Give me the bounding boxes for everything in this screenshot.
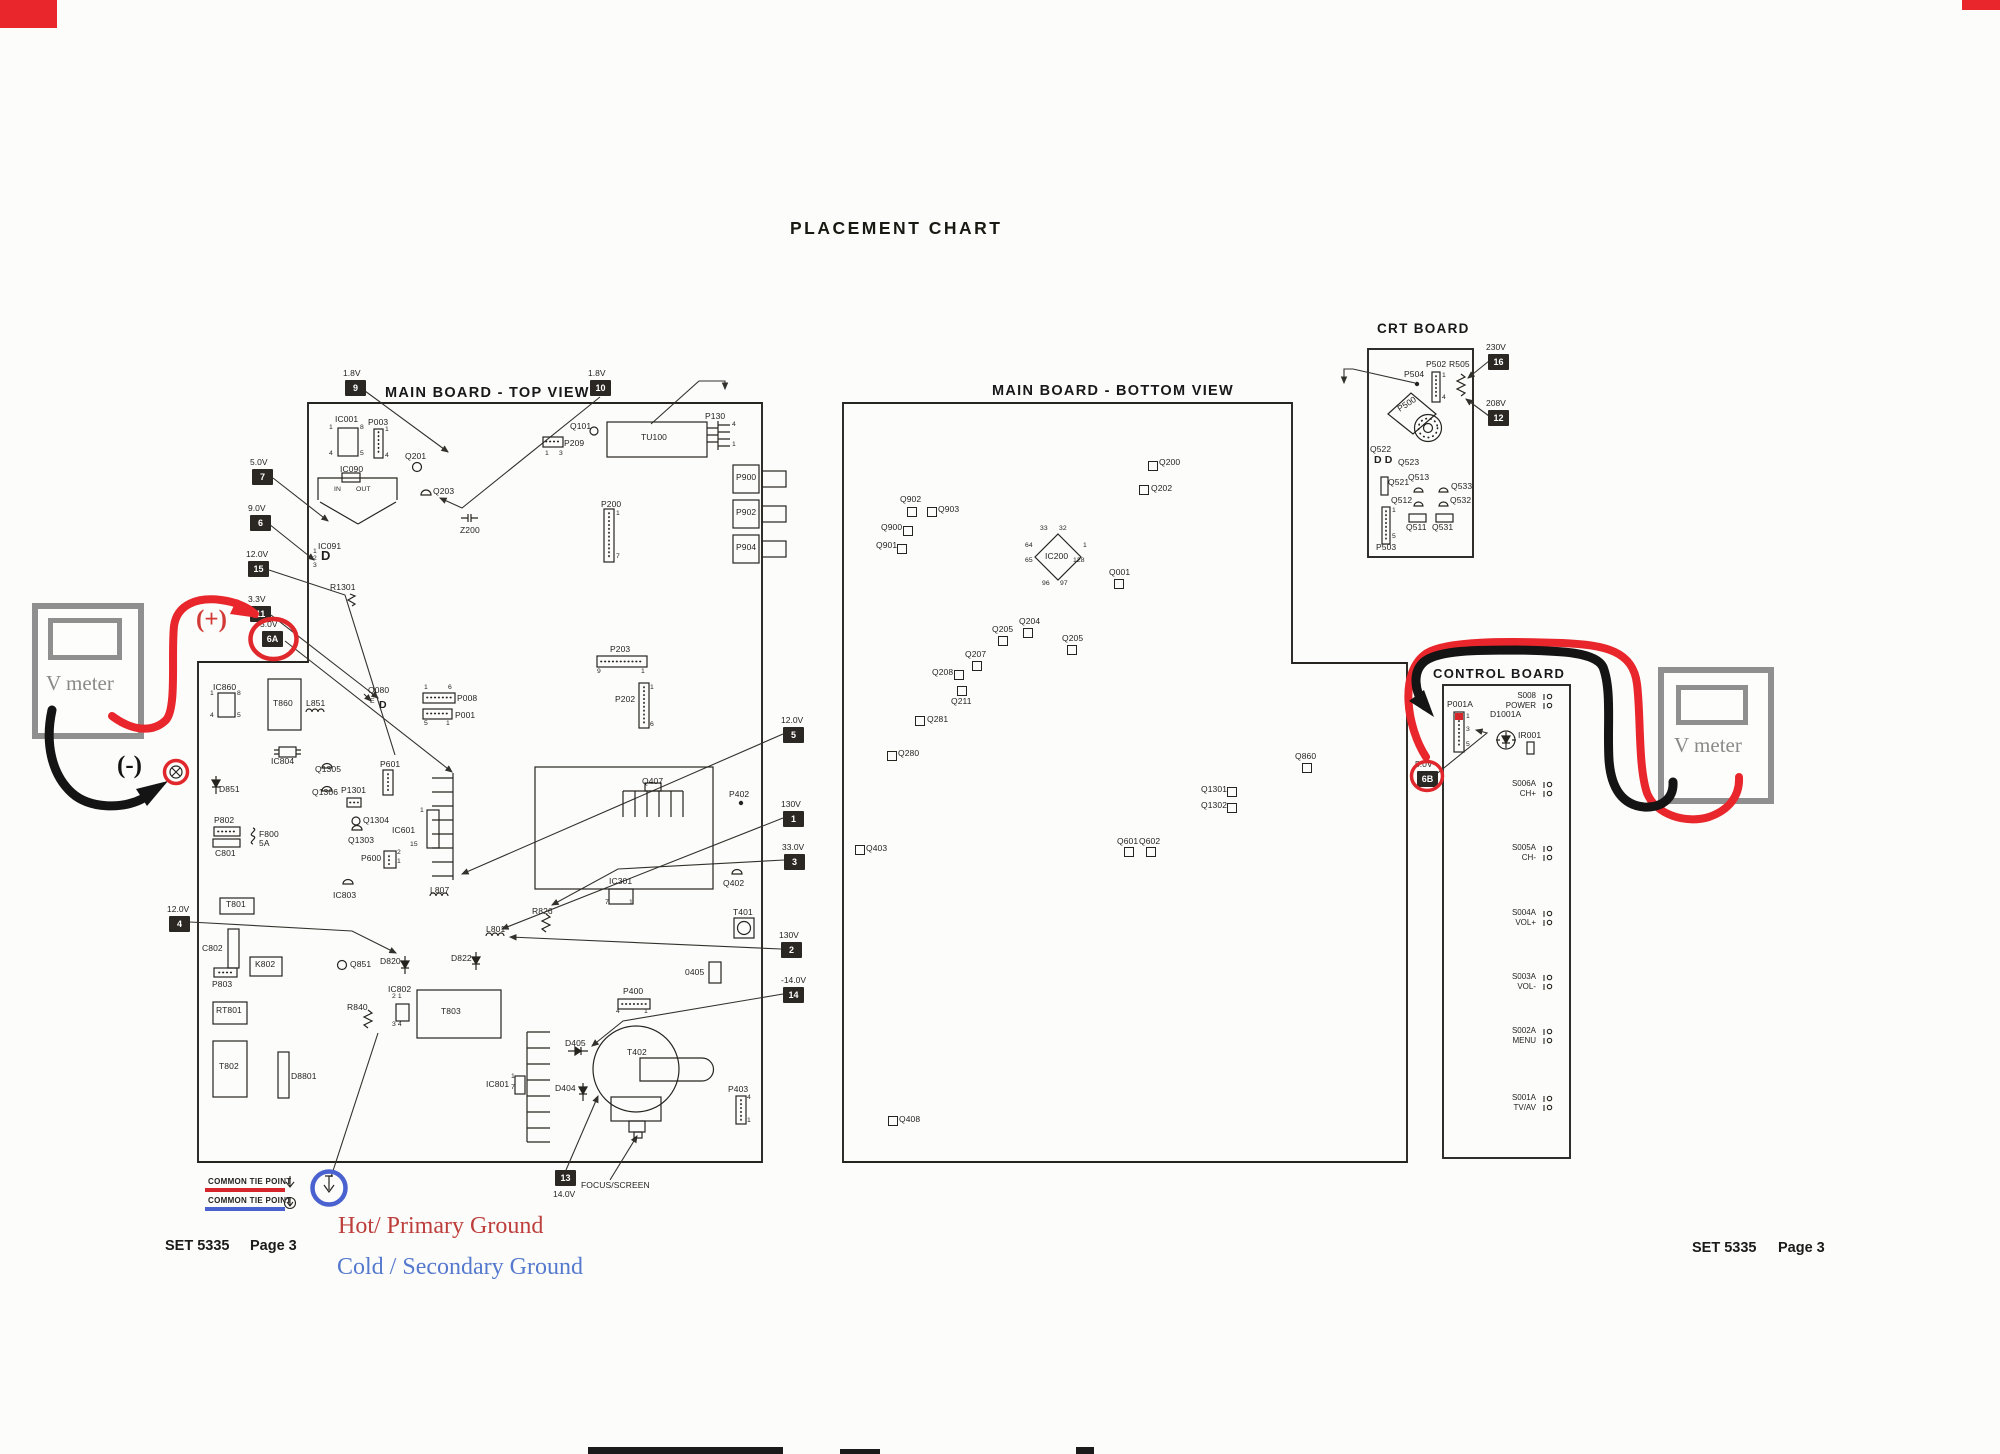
switch-label-ch-: S006ACH+	[1476, 779, 1536, 800]
legend-cold-ground: Cold / Secondary Ground	[337, 1254, 583, 1281]
component-label: D	[321, 549, 331, 563]
component-pad-q1302	[1227, 803, 1237, 813]
switch-icon-vol-	[1540, 909, 1556, 929]
pin-number: 32	[1059, 525, 1067, 532]
component-label: Q1301	[1201, 785, 1227, 794]
component-label: Q001	[1109, 568, 1130, 577]
pin-number: 5	[237, 712, 241, 719]
component-label: 5A	[259, 839, 270, 848]
component-label: FOCUS/SCREEN	[581, 1181, 650, 1190]
switch-icon-tv-av	[1540, 1094, 1556, 1114]
component-label: Q601	[1117, 837, 1138, 846]
component-label: Q281	[927, 715, 948, 724]
component-label: Q532	[1450, 496, 1471, 505]
test-point-voltage: 1.8V	[588, 368, 606, 378]
component-label: P904	[736, 543, 756, 552]
legend-hot-ground: Hot/ Primary Ground	[338, 1213, 543, 1240]
component-label: Q402	[723, 879, 744, 888]
component-label: P402	[729, 790, 749, 799]
test-point-voltage: 5.0V	[260, 619, 278, 629]
component-label: Q1306	[312, 788, 338, 797]
footer-right-set: SET 5335	[1692, 1240, 1757, 1256]
component-label: Q204	[1019, 617, 1040, 626]
test-point-6a: 6A	[262, 631, 283, 647]
test-point-voltage: 14.0V	[553, 1189, 575, 1199]
component-label: P008	[457, 694, 477, 703]
pin-number: 33	[1040, 525, 1048, 532]
component-label: R505	[1449, 360, 1470, 369]
component-label: RT801	[216, 1006, 242, 1015]
component-label: D851	[219, 785, 240, 794]
component-label: Q202	[1151, 484, 1172, 493]
component-pad-q403	[855, 845, 865, 855]
component-label: P209	[564, 439, 584, 448]
component-label: Q900	[881, 523, 902, 532]
component-label: Q080	[368, 686, 389, 695]
switch-icon-menu	[1540, 1027, 1556, 1047]
component-label: R1301	[330, 583, 356, 592]
pin-number: 3 4	[392, 1021, 402, 1028]
component-label: P1301	[341, 786, 366, 795]
component-label: P203	[610, 645, 630, 654]
v-meter-right-display	[1676, 685, 1748, 725]
component-label: D D	[1374, 455, 1392, 466]
pin-number: 3	[559, 450, 563, 457]
component-label: Q513	[1408, 473, 1429, 482]
component-label: Q201	[405, 452, 426, 461]
component-label: L801	[486, 925, 505, 934]
pin-number: 96	[1042, 580, 1050, 587]
v-meter-left: V meter	[32, 603, 144, 739]
component-label: Q903	[938, 505, 959, 514]
component-pad-q202	[1139, 485, 1149, 495]
component-label: P600	[361, 854, 381, 863]
test-point-6: 6	[250, 515, 271, 531]
test-point-voltage: 208V	[1486, 398, 1506, 408]
component-label: P803	[212, 980, 232, 989]
component-label: T401	[733, 908, 753, 917]
pin-number: 1	[629, 899, 633, 906]
test-point-6b: 6B	[1417, 771, 1438, 787]
component-label: Q511	[1406, 523, 1427, 532]
component-label: C801	[215, 849, 236, 858]
test-point-9: 9	[345, 380, 366, 396]
footer-left-set: SET 5335	[165, 1238, 230, 1254]
switch-label-menu: S002AMENU	[1476, 1026, 1536, 1047]
component-label: L807	[430, 886, 449, 895]
component-label: Q523	[1398, 458, 1419, 467]
pin-number: 97	[1060, 580, 1068, 587]
pin-number: 1	[446, 720, 450, 727]
component-label: IC200	[1045, 552, 1068, 561]
pin-number: 5	[1466, 741, 1470, 748]
component-label: P802	[214, 816, 234, 825]
component-label: IR001	[1518, 731, 1541, 740]
switch-label-power: S008POWER	[1476, 691, 1536, 712]
component-label: P001	[455, 711, 475, 720]
legend-common-tie-hot: COMMON TIE POINT	[208, 1177, 291, 1186]
component-pad-q204	[1023, 628, 1033, 638]
pin-number: 7	[605, 899, 609, 906]
crt-board-title: CRT BOARD	[1377, 321, 1470, 336]
component-label: IC301	[609, 877, 632, 886]
component-label: IN	[334, 486, 341, 493]
test-point-1: 1	[783, 811, 804, 827]
legend-common-tie-cold: COMMON TIE POINT	[208, 1196, 291, 1205]
pin-number: 1	[511, 1073, 515, 1080]
component-pad-q408	[888, 1116, 898, 1126]
component-pad-q903	[927, 507, 937, 517]
component-label: D822	[451, 954, 472, 963]
component-pad-q205	[1067, 645, 1077, 655]
component-label: P403	[728, 1085, 748, 1094]
component-label: P200	[601, 500, 621, 509]
pin-number: 1	[641, 668, 645, 675]
component-label: Q200	[1159, 458, 1180, 467]
component-label: Q512	[1391, 496, 1412, 505]
component-label: Q901	[876, 541, 897, 550]
switch-label-vol-: S004AVOL+	[1476, 908, 1536, 929]
test-point-voltage: 130V	[781, 799, 801, 809]
pin-number: 2 1	[392, 993, 402, 1000]
component-label: Q851	[350, 960, 371, 969]
pin-number: 9	[597, 668, 601, 675]
switch-icon-power	[1540, 692, 1556, 712]
component-pad-q602	[1146, 847, 1156, 857]
component-label: IC601	[392, 826, 415, 835]
component-label: Q522	[1370, 445, 1391, 454]
pin-number: 1	[424, 684, 428, 691]
component-label: Q211	[951, 697, 972, 706]
pin-number: 4	[385, 452, 389, 459]
pin-number: 4	[210, 712, 214, 719]
component-label: T801	[226, 900, 246, 909]
component-label: E	[370, 698, 375, 705]
footer-left-page: Page 3	[250, 1238, 297, 1254]
v-meter-left-label: V meter	[46, 671, 114, 696]
component-pad-q280	[887, 751, 897, 761]
pin-number: 2	[397, 849, 401, 856]
pin-number: 1	[616, 510, 620, 517]
component-label: Q860	[1295, 752, 1316, 761]
component-label: D	[379, 700, 387, 711]
v-meter-right-label: V meter	[1674, 733, 1742, 758]
component-label: P001A	[1447, 700, 1473, 709]
component-label: Q203	[433, 487, 454, 496]
component-pad-q200	[1148, 461, 1158, 471]
component-label: 0405	[685, 968, 704, 977]
component-pad-q001	[1114, 579, 1124, 589]
component-label: P502	[1426, 360, 1446, 369]
test-point-voltage: 33.0V	[782, 842, 804, 852]
component-label: Q205	[992, 625, 1013, 634]
component-label: IC801	[486, 1080, 509, 1089]
component-label: R826	[532, 907, 553, 916]
test-point-voltage: -14.0V	[781, 975, 806, 985]
test-point-voltage: 12.0V	[167, 904, 189, 914]
pin-number: 1	[210, 690, 214, 697]
pin-number: 5	[1392, 533, 1396, 540]
component-label: Q1302	[1201, 801, 1227, 810]
pin-number: 1	[644, 1008, 648, 1015]
pin-number: 64	[1025, 542, 1033, 549]
minus-annotation: (-)	[117, 752, 142, 780]
pin-number: 4	[747, 1094, 751, 1101]
component-pad-q902	[907, 507, 917, 517]
pin-number: 8	[237, 690, 241, 697]
component-label: Q205	[1062, 634, 1083, 643]
component-label: Q602	[1139, 837, 1160, 846]
component-label: P400	[623, 987, 643, 996]
component-label: L851	[306, 699, 325, 708]
test-point-voltage: 1.8V	[343, 368, 361, 378]
component-label: Q1303	[348, 836, 374, 845]
pin-number: 6	[650, 721, 654, 728]
v-meter-left-display	[48, 618, 122, 660]
test-point-12: 12	[1488, 410, 1509, 426]
test-point-3: 3	[784, 854, 805, 870]
component-label: TU100	[641, 433, 667, 442]
component-label: Q208	[932, 668, 953, 677]
test-point-voltage: 12.0V	[781, 715, 803, 725]
component-label: P504	[1404, 370, 1424, 379]
test-point-voltage: 5.0V	[250, 457, 268, 467]
component-pad-q1301	[1227, 787, 1237, 797]
component-label: P503	[1376, 543, 1396, 552]
component-pad-q601	[1124, 847, 1134, 857]
test-point-2: 2	[781, 942, 802, 958]
component-pad-q281	[915, 716, 925, 726]
component-label: Q531	[1432, 523, 1453, 532]
component-label: R840	[347, 1003, 368, 1012]
component-label: Q1304	[363, 816, 389, 825]
pin-number: 5	[360, 450, 364, 457]
component-pad-q900	[903, 526, 913, 536]
component-label: D820	[380, 957, 401, 966]
pin-number: 6	[448, 684, 452, 691]
pin-number: 1	[420, 807, 424, 814]
component-label: P902	[736, 508, 756, 517]
pin-number: 4	[616, 1008, 620, 1015]
switch-label-vol-: S003AVOL-	[1476, 972, 1536, 993]
component-label: C802	[202, 944, 223, 953]
component-label: Q902	[900, 495, 921, 504]
component-pad-q205	[998, 636, 1008, 646]
component-label: P900	[736, 473, 756, 482]
component-label: Q1305	[315, 765, 341, 774]
component-label: P500	[1396, 395, 1418, 414]
component-label: Q533	[1451, 482, 1472, 491]
component-pad-q860	[1302, 763, 1312, 773]
pin-number: 5	[424, 720, 428, 727]
component-pad-q901	[897, 544, 907, 554]
switch-icon-ch-	[1540, 780, 1556, 800]
component-pad-q211	[957, 686, 967, 696]
test-point-voltage: 130V	[779, 930, 799, 940]
pin-number: 128	[1073, 557, 1085, 564]
component-label: IC001	[335, 415, 358, 424]
component-label: T802	[219, 1062, 239, 1071]
test-point-voltage: 12.0V	[246, 549, 268, 559]
test-point-voltage: 5.0V	[1415, 759, 1433, 769]
top-board-title: MAIN BOARD - TOP VIEW	[385, 385, 590, 401]
component-label: P601	[380, 760, 400, 769]
component-label: K802	[255, 960, 275, 969]
component-label: Q408	[899, 1115, 920, 1124]
pin-number: 1	[397, 858, 401, 865]
test-point-5: 5	[783, 727, 804, 743]
component-label: P202	[615, 695, 635, 704]
component-label: Q207	[965, 650, 986, 659]
pin-number: 1	[732, 441, 736, 448]
pin-number: 7	[511, 1084, 515, 1091]
test-point-15: 15	[248, 561, 269, 577]
switch-label-tv-av: S001ATV/AV	[1476, 1093, 1536, 1114]
switch-icon-vol-	[1540, 973, 1556, 993]
pin-number: 1	[385, 426, 389, 433]
pin-number: 1	[1083, 542, 1087, 549]
test-point-voltage: 230V	[1486, 342, 1506, 352]
component-label: T402	[627, 1048, 647, 1057]
component-label: D405	[565, 1039, 586, 1048]
pin-number: 8	[360, 424, 364, 431]
bottom-board-title: MAIN BOARD - BOTTOM VIEW	[992, 383, 1234, 399]
component-label: IC090	[340, 465, 363, 474]
component-label: Q101	[570, 422, 591, 431]
test-point-voltage: 3.3V	[248, 594, 266, 604]
pin-number: 1	[1392, 507, 1396, 514]
test-point-voltage: 9.0V	[248, 503, 266, 513]
component-label: D8801	[291, 1072, 317, 1081]
v-meter-right: V meter	[1658, 667, 1774, 804]
component-label: IC804	[271, 757, 294, 766]
component-label: Q521	[1388, 478, 1409, 487]
pin-number: 1	[650, 684, 654, 691]
control-board-title: CONTROL BOARD	[1433, 666, 1565, 681]
test-point-4: 4	[169, 916, 190, 932]
pin-number: 15	[410, 841, 418, 848]
test-point-13: 13	[555, 1170, 576, 1186]
pin-number: 3	[1466, 726, 1470, 733]
pin-number: 1	[747, 1117, 751, 1124]
component-label: Z200	[460, 526, 480, 535]
test-point-7: 7	[252, 469, 273, 485]
pin-number: 65	[1025, 557, 1033, 564]
pin-number: 4	[329, 450, 333, 457]
test-point-10: 10	[590, 380, 611, 396]
footer-right-page: Page 3	[1778, 1240, 1825, 1256]
pin-number: 4	[1442, 394, 1446, 401]
pin-number: 1	[1466, 713, 1470, 720]
pin-number: 4	[732, 421, 736, 428]
component-label: IC860	[213, 683, 236, 692]
component-label: OUT	[356, 486, 371, 493]
component-pad-q208	[954, 670, 964, 680]
test-point-14: 14	[783, 987, 804, 1003]
component-label: IC803	[333, 891, 356, 900]
pin-number: 1	[1442, 372, 1446, 379]
component-label: Q280	[898, 749, 919, 758]
component-label: Q407	[642, 777, 663, 786]
component-label: Q403	[866, 844, 887, 853]
component-label: D404	[555, 1084, 576, 1093]
test-point-16: 16	[1488, 354, 1509, 370]
switch-icon-ch-	[1540, 844, 1556, 864]
plus-annotation: (+)	[196, 606, 227, 634]
pin-number: 1	[329, 424, 333, 431]
component-label: P130	[705, 412, 725, 421]
page-title: PLACEMENT CHART	[790, 218, 1003, 239]
component-pad-q207	[972, 661, 982, 671]
placement-chart-page: IC001P003IC090INOUTQ201Q203Z200IC091DQ10…	[0, 0, 2000, 1454]
pin-number: 3	[313, 562, 317, 569]
pin-number: 7	[616, 553, 620, 560]
switch-label-ch-: S005ACH-	[1476, 843, 1536, 864]
component-label: T803	[441, 1007, 461, 1016]
pin-number: 1	[545, 450, 549, 457]
component-label: T860	[273, 699, 293, 708]
